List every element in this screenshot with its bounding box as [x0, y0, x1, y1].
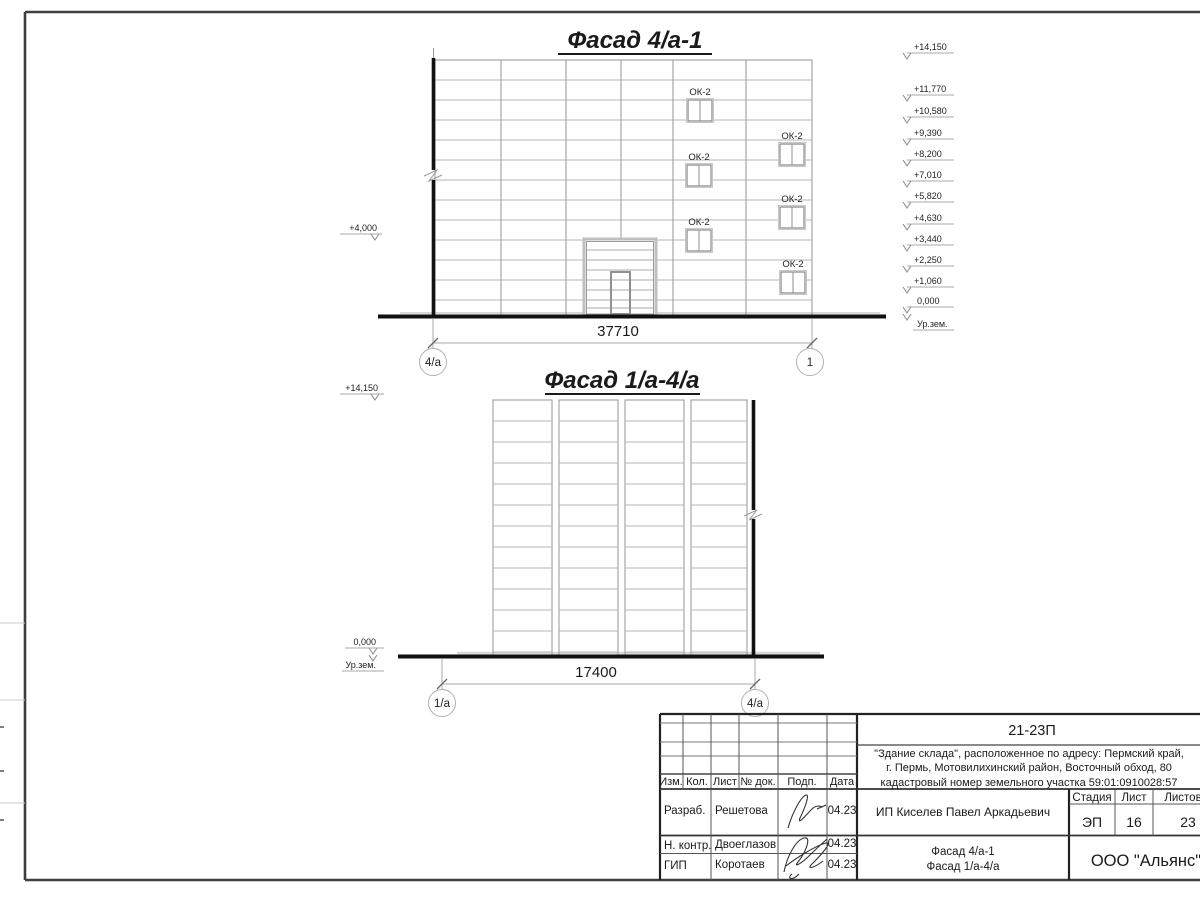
margin-stamp-marks	[0, 727, 4, 820]
window-ok2: ОК-2	[686, 152, 713, 188]
axis-label: 4/а	[747, 698, 764, 710]
elevation-mark: +8,200	[903, 149, 954, 166]
sheets-header: Листов	[1164, 792, 1200, 804]
axis-label: 1/а	[434, 698, 451, 710]
elevation-arrow	[903, 181, 911, 187]
role-label: Н. контр.	[664, 840, 711, 852]
project-code: 21-23П	[1008, 723, 1056, 739]
elevation-mark: +11,770	[903, 84, 954, 101]
signature-row: ГИП Коротаев 04.23	[664, 859, 856, 872]
window-tag: ОК-2	[688, 217, 709, 228]
elevation-arrow	[903, 287, 911, 293]
elevation-arrow	[903, 139, 911, 145]
description-line: г. Пермь, Мотовилихинский район, Восточн…	[886, 762, 1172, 774]
elevation-mark: +1,060	[903, 276, 954, 293]
elevation-arrow	[903, 202, 911, 208]
window-tag: ОК-2	[782, 259, 803, 270]
elevation-arrow	[369, 648, 377, 654]
sheet-value: 16	[1126, 814, 1142, 830]
elevation-arrow	[903, 95, 911, 101]
project-description: "Здание склада", расположенное по адресу…	[874, 748, 1184, 789]
column-header: Лист	[713, 776, 737, 788]
facade2-panel-lines	[493, 421, 747, 652]
window-tag: ОК-2	[781, 194, 802, 205]
elevation-value: 0,000	[917, 296, 940, 306]
wall-panel	[559, 400, 618, 655]
facade2-wall-panels	[493, 400, 747, 655]
elevation-mark: +4,630	[903, 213, 954, 230]
elevation-mark: +4,000	[340, 223, 382, 240]
column-header: Дата	[830, 776, 855, 788]
elevation-value: +10,580	[914, 106, 947, 116]
signature-scribble	[788, 795, 826, 828]
window-ok2: ОК-2	[779, 194, 806, 230]
elevation-value: +14,150	[914, 42, 947, 52]
gate	[584, 239, 656, 316]
elevation-value: +5,820	[914, 191, 942, 201]
axis-bubble: 1	[797, 349, 824, 376]
facade2-dimension: 17400	[437, 659, 760, 691]
date-value: 04.23	[828, 805, 857, 817]
axis-label: 4/а	[425, 357, 442, 369]
sheet-header: Лист	[1122, 792, 1148, 804]
window-ok2: ОК-2	[686, 217, 713, 253]
column-header: Подп.	[787, 776, 816, 788]
elevation-arrow	[903, 266, 911, 272]
axis-bubble: 1/а	[429, 690, 456, 717]
ground-level-label: Ур.зем.	[917, 319, 948, 329]
window-ok2: ОК-2	[687, 87, 714, 123]
elevation-value: +8,200	[914, 149, 942, 159]
elevation-arrow	[903, 245, 911, 251]
facade-4a-1-view: Фасад 4/а-1 ОК-2 ОК-2	[340, 27, 954, 376]
elevation-mark: +9,390	[903, 128, 954, 145]
window-tag: ОК-2	[689, 87, 710, 98]
description-line: кадастровый номер земельного участка 59:…	[881, 777, 1178, 789]
elevation-value: +4,000	[349, 223, 377, 233]
elevation-value: +7,010	[914, 170, 942, 180]
elevation-arrow	[903, 160, 911, 166]
sheet-content-box: Фасад 4/а-1 Фасад 1/а-4/а	[927, 846, 1001, 873]
date-value: 04.23	[828, 859, 857, 871]
drawing-sheet: Фасад 4/а-1 ОК-2 ОК-2	[0, 0, 1200, 900]
elevation-arrow	[903, 117, 911, 123]
facade-1a-4a-view: Фасад 1/а-4/а +14,150 0,000	[340, 367, 824, 717]
description-line: "Здание склада", расположенное по адресу…	[874, 748, 1184, 760]
facade1-break-mark	[424, 170, 442, 181]
elevation-value: +2,250	[914, 255, 942, 265]
elevation-value: +14,150	[345, 383, 378, 393]
elevation-mark: +14,150	[340, 383, 384, 400]
elevation-value: +11,770	[914, 84, 946, 94]
role-label: ГИП	[664, 860, 687, 872]
elevation-mark: +14,150	[903, 42, 954, 59]
elevation-arrow	[903, 53, 911, 59]
wall-panel	[625, 400, 684, 655]
dimension-value: 17400	[575, 664, 617, 681]
stage-sheet-grid: Стадия Лист Листов ЭП 16 23	[1072, 792, 1200, 830]
revision-table-header: Изм. Кол. Лист № док. Подп. Дата	[659, 776, 855, 788]
elevation-value: +3,440	[914, 234, 942, 244]
signature-scribble	[784, 838, 828, 879]
dimension-value: 37710	[597, 323, 639, 340]
elevation-value: +4,630	[914, 213, 942, 223]
elevation-value: +9,390	[914, 128, 942, 138]
stage-header: Стадия	[1072, 792, 1111, 804]
elevation-mark: +3,440	[903, 234, 954, 251]
role-label: Разраб.	[664, 805, 705, 817]
axis-bubble: 4/а	[420, 349, 447, 376]
elevation-arrow	[371, 394, 379, 400]
window-ok2: ОК-2	[779, 131, 806, 167]
sheets-value: 23	[1180, 814, 1196, 830]
person-name: Коротаев	[715, 859, 765, 871]
person-name: Решетова	[715, 805, 768, 817]
gate-outer-frame	[584, 239, 656, 316]
wall-panel	[691, 400, 747, 655]
facade2-title: Фасад 1/а-4/а	[544, 367, 699, 394]
organization-name: ООО "Альянс"	[1091, 852, 1200, 870]
wall-panel	[493, 400, 552, 655]
window-tag: ОК-2	[781, 131, 802, 142]
elevation-mark: 0,000	[903, 296, 954, 320]
ground-level-label: Ур.зем.	[345, 660, 376, 670]
date-value: 04.23	[828, 838, 857, 850]
stage-value: ЭП	[1082, 814, 1102, 830]
elevation-arrow	[903, 307, 911, 313]
facade1-right-elevations: +14,150 +11,770 +10,580 +9,390 +8,200	[903, 42, 954, 330]
column-header: Кол.	[686, 776, 708, 788]
signature-row: Разраб. Решетова 04.23	[664, 805, 856, 817]
window-tag: ОК-2	[688, 152, 709, 163]
elevation-value: 0,000	[353, 637, 376, 647]
elevation-arrow	[903, 224, 911, 230]
margin-stamp-lines	[0, 623, 25, 803]
elevation-mark: +7,010	[903, 170, 954, 187]
content-line: Фасад 1/а-4/а	[927, 861, 1001, 873]
facade1-dimension: 37710	[428, 319, 817, 350]
axis-label: 1	[807, 357, 813, 369]
ground-level-mark: Ур.зем.	[342, 660, 384, 671]
elevation-mark: +2,250	[903, 255, 954, 272]
elevation-value: +1,060	[914, 276, 942, 286]
window-ok2: ОК-2	[780, 259, 807, 295]
column-header: Изм.	[659, 776, 683, 788]
elevation-mark: +10,580	[903, 106, 954, 123]
facade1-title: Фасад 4/а-1	[568, 27, 703, 54]
column-header: № док.	[740, 776, 775, 788]
title-block: 21-23П "Здание склада", расположенное по…	[659, 714, 1200, 880]
elevation-mark: 0,000	[345, 637, 384, 661]
ground-arrow	[903, 314, 911, 320]
elevation-mark: +5,820	[903, 191, 954, 208]
person-name: Двоеглазов	[715, 839, 776, 851]
axis-bubble: 4/а	[742, 690, 769, 717]
ground-level-mark: Ур.зем.	[913, 319, 954, 330]
elevation-arrow	[371, 234, 379, 240]
facade-drawing-svg: Фасад 4/а-1 ОК-2 ОК-2	[0, 0, 1200, 900]
content-line: Фасад 4/а-1	[931, 846, 994, 858]
client-name: ИП Киселев Павел Аркадьевич	[876, 805, 1050, 819]
